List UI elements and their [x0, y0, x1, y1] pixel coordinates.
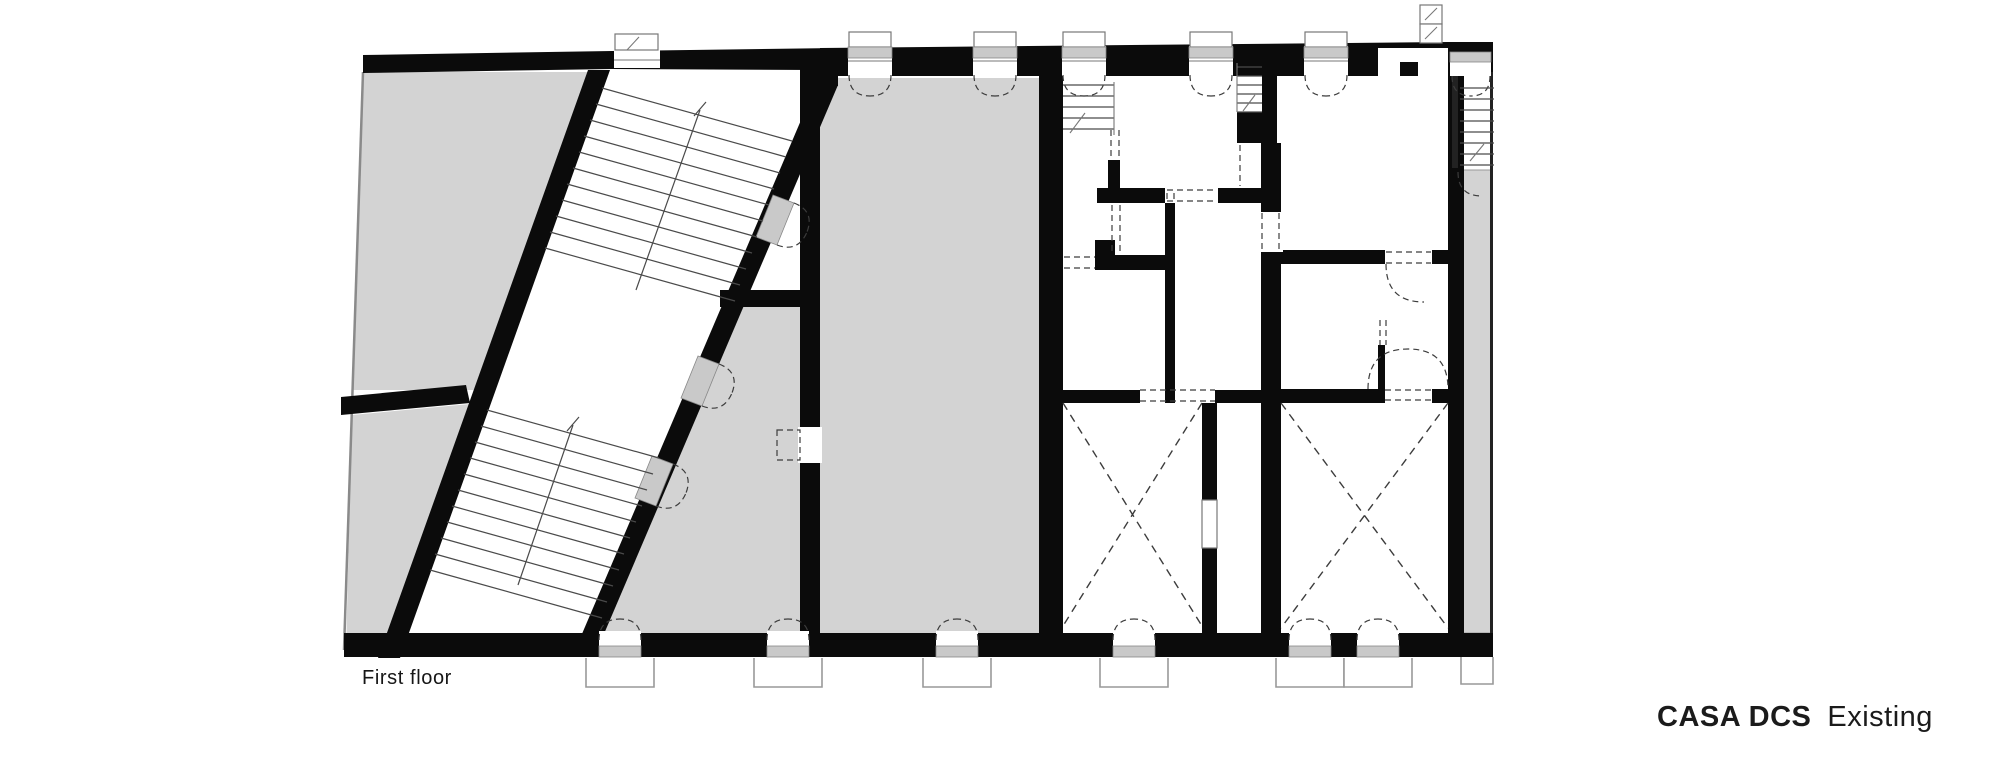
project-variant: Existing — [1827, 701, 1933, 733]
window-sill-box — [754, 658, 822, 687]
window-sill-band — [767, 646, 809, 657]
stair-tread — [590, 120, 780, 173]
floor-plan-svg — [0, 0, 2000, 771]
window-swing-arc — [1211, 75, 1232, 96]
window-sill-box — [923, 658, 991, 687]
window-sill-band — [936, 646, 978, 657]
window-bay-box — [974, 32, 1016, 47]
window-swing-arc — [1190, 75, 1211, 96]
window-sill-band — [973, 47, 1017, 58]
window-sill-band — [848, 47, 892, 58]
gallery-stair-tick — [1470, 144, 1484, 161]
stair-tread — [556, 216, 746, 269]
window-sill-box — [1276, 658, 1344, 687]
window-bay-box — [1190, 32, 1232, 47]
wall-stub — [1378, 345, 1385, 389]
stair-tread — [458, 490, 630, 538]
project-name: CASA DCS — [1657, 701, 1811, 733]
floor-plan-canvas: First floor CASA DCSExisting — [0, 0, 2000, 771]
stair-tread — [464, 474, 636, 522]
window-sill-band — [1062, 47, 1106, 58]
roof-box-stub — [1400, 62, 1418, 76]
stair-tread — [567, 184, 757, 237]
stair-arrow-tick — [694, 102, 706, 116]
window-swing-arc — [1326, 75, 1347, 96]
window-sill-band — [1189, 47, 1233, 58]
stairtop-window-box — [615, 34, 658, 50]
window-sill-box — [586, 658, 654, 687]
door-panel — [1202, 500, 1217, 548]
floor-label: First floor — [362, 667, 452, 690]
corner-window-sill — [1450, 52, 1491, 62]
wall-h1-right — [1218, 188, 1261, 203]
window-sill-band — [1357, 646, 1399, 657]
stair-walkline — [636, 110, 700, 290]
right-edge-line — [1490, 72, 1493, 633]
wall-v3 — [1165, 203, 1175, 403]
stair-tread — [579, 152, 769, 205]
window-sill-box — [1344, 658, 1412, 687]
window-sill-band — [1113, 646, 1155, 657]
gallery-sill-box — [1461, 657, 1493, 684]
window-swing-arc — [1471, 76, 1490, 96]
side-gallery-floor — [1462, 170, 1492, 633]
stair-arrow-tick — [567, 417, 579, 431]
stair2-wall-base — [1237, 112, 1277, 143]
stair-tread — [573, 168, 763, 221]
room-upper-left-floor — [352, 72, 588, 390]
door-swing-arc — [1386, 264, 1424, 302]
room-middle-floor — [820, 78, 1039, 633]
mid-left-wall — [800, 66, 820, 633]
stair-tread — [584, 136, 774, 189]
stair-tread — [602, 88, 792, 141]
window-bay-box — [1063, 32, 1105, 47]
stair-tread — [441, 538, 613, 586]
stair-tread — [487, 410, 659, 458]
wall-h2 — [1095, 255, 1165, 270]
stair-tread — [562, 200, 752, 253]
wall-a2-left — [1277, 250, 1385, 264]
stair-tread — [596, 104, 786, 157]
stair-tread — [550, 232, 740, 285]
stairtop-window-opening — [614, 50, 660, 68]
top-wall-left — [363, 51, 612, 73]
stair-tread — [481, 426, 653, 474]
door-gap-midwall — [798, 427, 822, 463]
window-sill-band — [1289, 646, 1331, 657]
wall-h1-left — [1097, 188, 1165, 203]
door-gap-h2 — [1063, 253, 1095, 272]
window-sill-band — [599, 646, 641, 657]
window-sill-box — [1100, 658, 1168, 687]
window-sill-band — [1304, 47, 1348, 58]
stair-tread — [545, 248, 735, 301]
wall-a2-right — [1432, 250, 1448, 264]
wall-v1 — [1108, 160, 1120, 188]
service-stair-tick — [1070, 113, 1085, 133]
wall-a — [1039, 48, 1063, 633]
window-bay-box — [849, 32, 891, 47]
void-cross — [1063, 403, 1202, 626]
stair-walkline — [518, 425, 573, 585]
window-bay-box — [1305, 32, 1347, 47]
project-title: CASA DCSExisting — [1657, 701, 1933, 734]
window-swing-arc — [1305, 75, 1326, 96]
